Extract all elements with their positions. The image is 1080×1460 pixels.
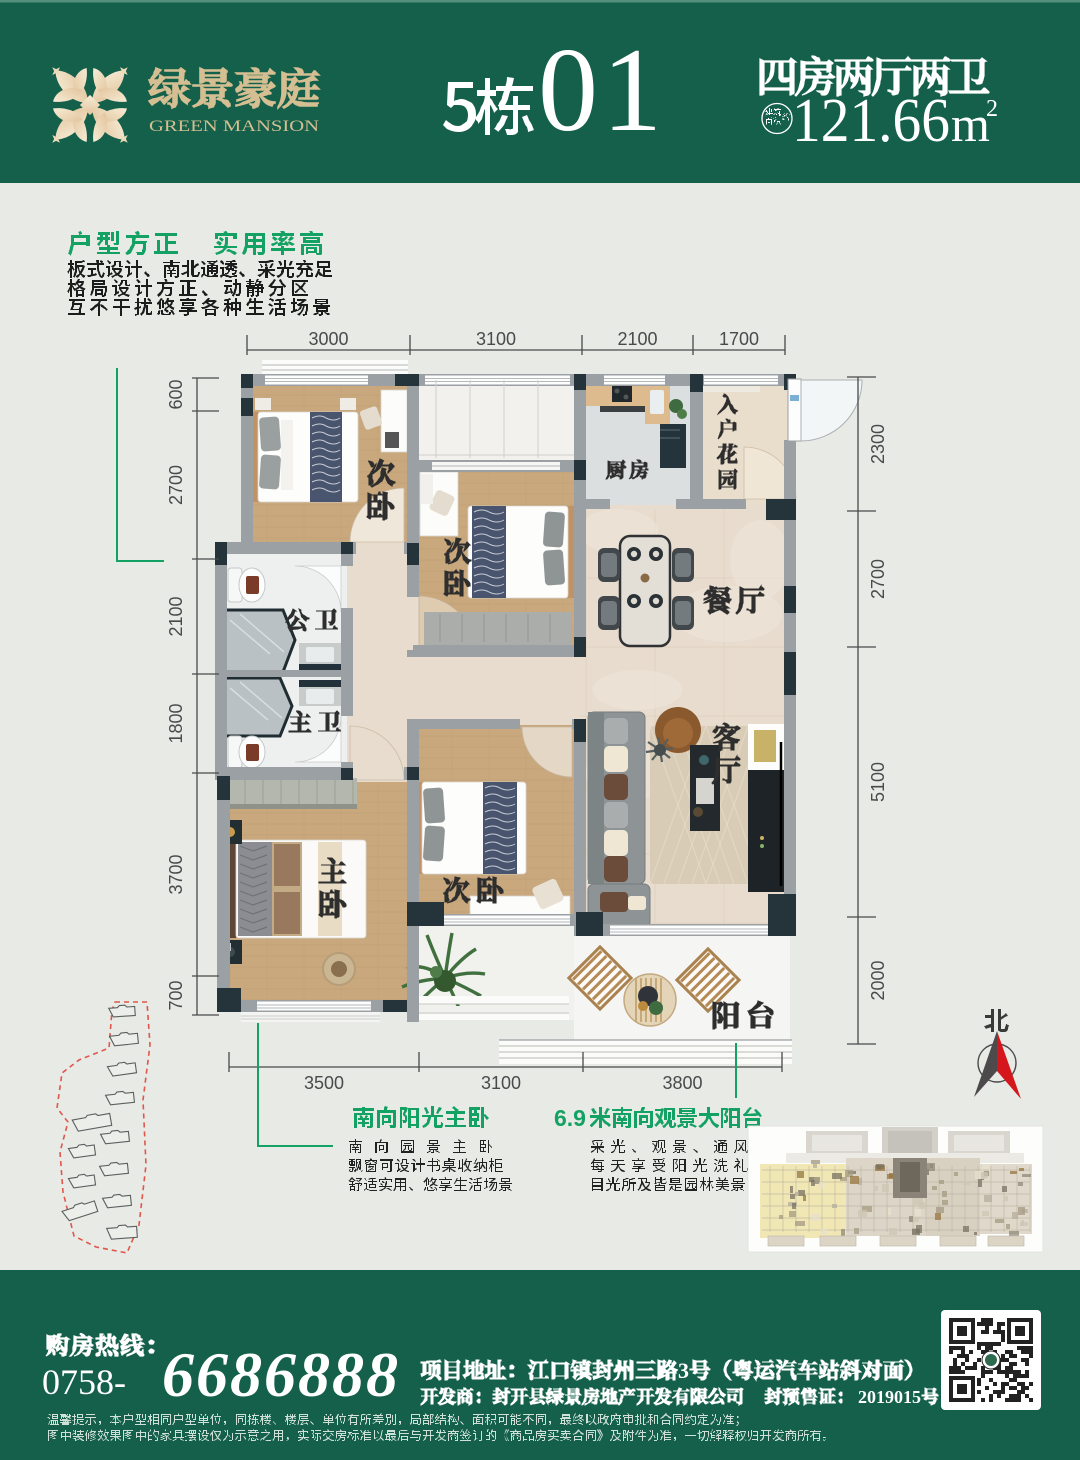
svg-text:3500: 3500 <box>304 1073 344 1093</box>
svg-text:5100: 5100 <box>868 762 888 802</box>
svg-text:3100: 3100 <box>481 1073 521 1093</box>
svg-text:600: 600 <box>166 379 186 409</box>
svg-text:121.66: 121.66 <box>792 87 950 155</box>
svg-text:2100: 2100 <box>617 329 657 349</box>
svg-text:3800: 3800 <box>662 1073 702 1093</box>
svg-text:2019015: 2019015 <box>858 1387 921 1407</box>
svg-text:GREEN MANSION: GREEN MANSION <box>149 118 320 135</box>
svg-text:3100: 3100 <box>476 329 516 349</box>
svg-text:1700: 1700 <box>719 329 759 349</box>
svg-text:1800: 1800 <box>166 703 186 743</box>
svg-text:2100: 2100 <box>166 596 186 636</box>
svg-text:6686888: 6686888 <box>162 1339 400 1410</box>
svg-text:2700: 2700 <box>868 559 888 599</box>
svg-text:01: 01 <box>538 23 666 156</box>
svg-text:2300: 2300 <box>868 424 888 464</box>
svg-text:2000: 2000 <box>868 960 888 1000</box>
svg-text:2700: 2700 <box>166 465 186 505</box>
svg-text:3700: 3700 <box>166 854 186 894</box>
svg-text:3: 3 <box>678 1358 689 1383</box>
svg-text:3000: 3000 <box>308 329 348 349</box>
svg-text:700: 700 <box>166 980 186 1010</box>
svg-text:6.9: 6.9 <box>554 1105 586 1131</box>
svg-text:2: 2 <box>986 96 998 122</box>
svg-text:m: m <box>951 96 990 152</box>
svg-text:0758-: 0758- <box>42 1362 126 1402</box>
